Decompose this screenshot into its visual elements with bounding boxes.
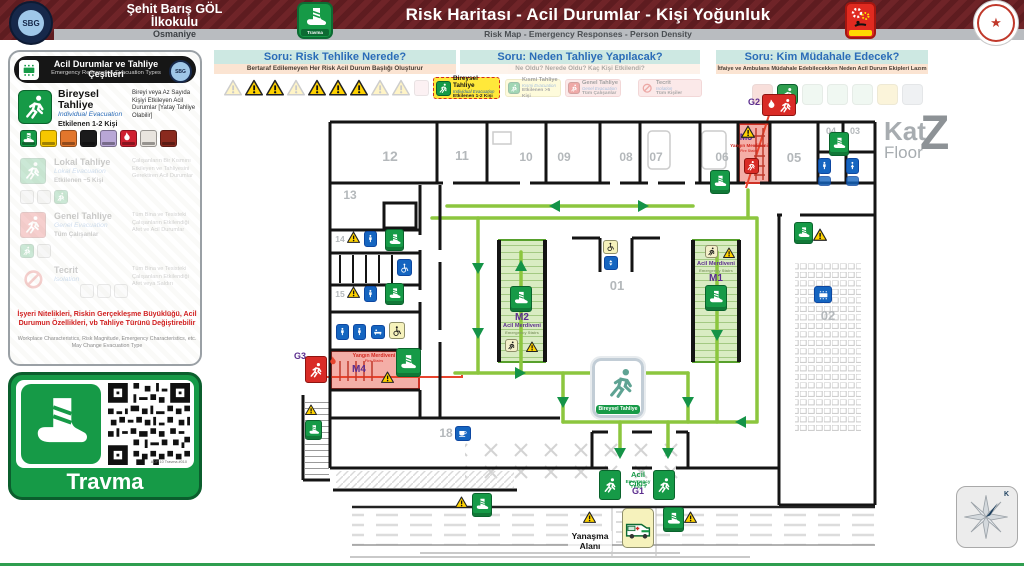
warning-icon-ramp	[455, 496, 468, 509]
warning-icon-wc15	[347, 286, 360, 299]
exit-g2-code: G2	[744, 97, 764, 107]
elevator-icon	[604, 256, 618, 270]
approach-area-line1: Yanaşma	[572, 531, 609, 541]
stair-m3-name-en: Fire Stairs	[729, 149, 769, 153]
fire-run-icon-m3	[744, 158, 759, 174]
wc-male-icon-15	[364, 286, 377, 302]
stair-m1-code: M1	[701, 273, 731, 284]
warning-icon-wc14	[347, 231, 360, 244]
trauma-point-icon-m4	[396, 348, 421, 377]
trauma-point-icon-wc14	[385, 229, 404, 251]
accessible-wc-icon	[389, 322, 405, 339]
trauma-point-icon-hall	[794, 222, 813, 244]
trauma-point-icon-stairs	[305, 420, 322, 440]
stair-m4-code: M4	[344, 364, 374, 375]
individual-evacuation-badge: Bireysel Tahliye	[592, 358, 644, 418]
exit-g3-flame-icon	[325, 354, 340, 369]
trauma-point-icon-wc-top	[829, 132, 849, 156]
stair-run-icon-m1	[705, 245, 718, 258]
warning-icon-road-right	[684, 511, 697, 524]
conference-hall-icon	[814, 286, 832, 303]
trauma-point-icon-m2	[510, 286, 532, 312]
warning-icon-stairs	[305, 403, 317, 415]
warning-icon-m3	[741, 125, 755, 139]
warning-icon-hall	[813, 228, 827, 242]
trauma-point-icon-m1	[705, 285, 727, 311]
floor-code: Z	[920, 106, 949, 161]
room-label-02: 02	[813, 308, 843, 323]
exit-g1-icon-left	[599, 470, 621, 500]
warning-icon-m2	[526, 340, 538, 352]
stair-m3-name: Yangın Merdiveni	[729, 143, 769, 148]
exit-g2-fire-exit-icon	[762, 94, 796, 116]
wc-male-icon-14	[364, 231, 377, 247]
approach-area-label: Yanaşma Alanı	[568, 531, 612, 551]
warning-icon-m1	[723, 246, 735, 258]
trauma-point-icon-ramp	[472, 493, 492, 517]
wc-sign-female	[846, 176, 859, 186]
ambulance-icon	[622, 508, 654, 548]
room-label-07: 07	[642, 150, 670, 164]
exit-g3-fire-exit-icon	[305, 356, 327, 383]
stair-m1-name: Acil Merdiveni	[689, 261, 743, 267]
trauma-point-icon-road	[663, 507, 684, 532]
room-label-08: 08	[612, 150, 640, 164]
stair-run-icon-m2	[505, 339, 518, 352]
stair-m4-name-en: Fire Stairs	[346, 359, 402, 363]
stair-m2-name-en: Emergency Stairs	[495, 330, 549, 335]
floor-label-floor: Floor	[884, 143, 923, 163]
wc-male-icon-a	[336, 324, 349, 340]
trauma-point-icon-wc15	[385, 283, 404, 305]
wc-sign-male	[818, 176, 831, 186]
exit-g1-icon-right	[653, 470, 675, 500]
individual-evacuation-badge-label: Bireysel Tahliye	[596, 405, 640, 414]
wc-male-icon-b	[353, 324, 366, 340]
approach-area-line2: Alanı	[580, 541, 601, 551]
wc-male-icon-top	[818, 158, 831, 174]
stair-m2-name: Acil Merdiveni	[495, 323, 549, 329]
warning-icon-m4	[381, 371, 394, 384]
room-label-13: 13	[336, 188, 364, 202]
ramp-hatch	[336, 471, 514, 488]
room-label-01: 01	[602, 278, 632, 293]
room-label-09: 09	[550, 150, 578, 164]
trauma-point-icon-corridor	[710, 170, 730, 194]
room-label-10: 10	[512, 150, 540, 164]
elevator-accessible-icon	[603, 240, 618, 254]
room-label-05: 05	[780, 150, 808, 165]
fine-print-line-2	[350, 556, 750, 558]
cafeteria-icon	[455, 426, 471, 441]
room-label-11: 11	[446, 148, 478, 163]
stair-m2-code: M2	[507, 312, 537, 323]
evacuation-poster: SBG Şehit Barış GÖL İlkokulu Osmaniye Tr…	[0, 0, 1024, 572]
page-bottom-border	[0, 563, 1024, 566]
compass-icon: K	[956, 486, 1018, 548]
fine-print-line-1	[420, 552, 680, 554]
warning-icon-road-left	[583, 511, 596, 524]
compass-north-label: K	[1004, 491, 1009, 498]
accessible-stall-icon	[397, 259, 412, 276]
room-label-12: 12	[374, 148, 406, 164]
baby-change-icon	[371, 325, 385, 339]
wc-female-icon-top	[846, 158, 859, 174]
exit-g1-code: G1	[621, 486, 655, 496]
